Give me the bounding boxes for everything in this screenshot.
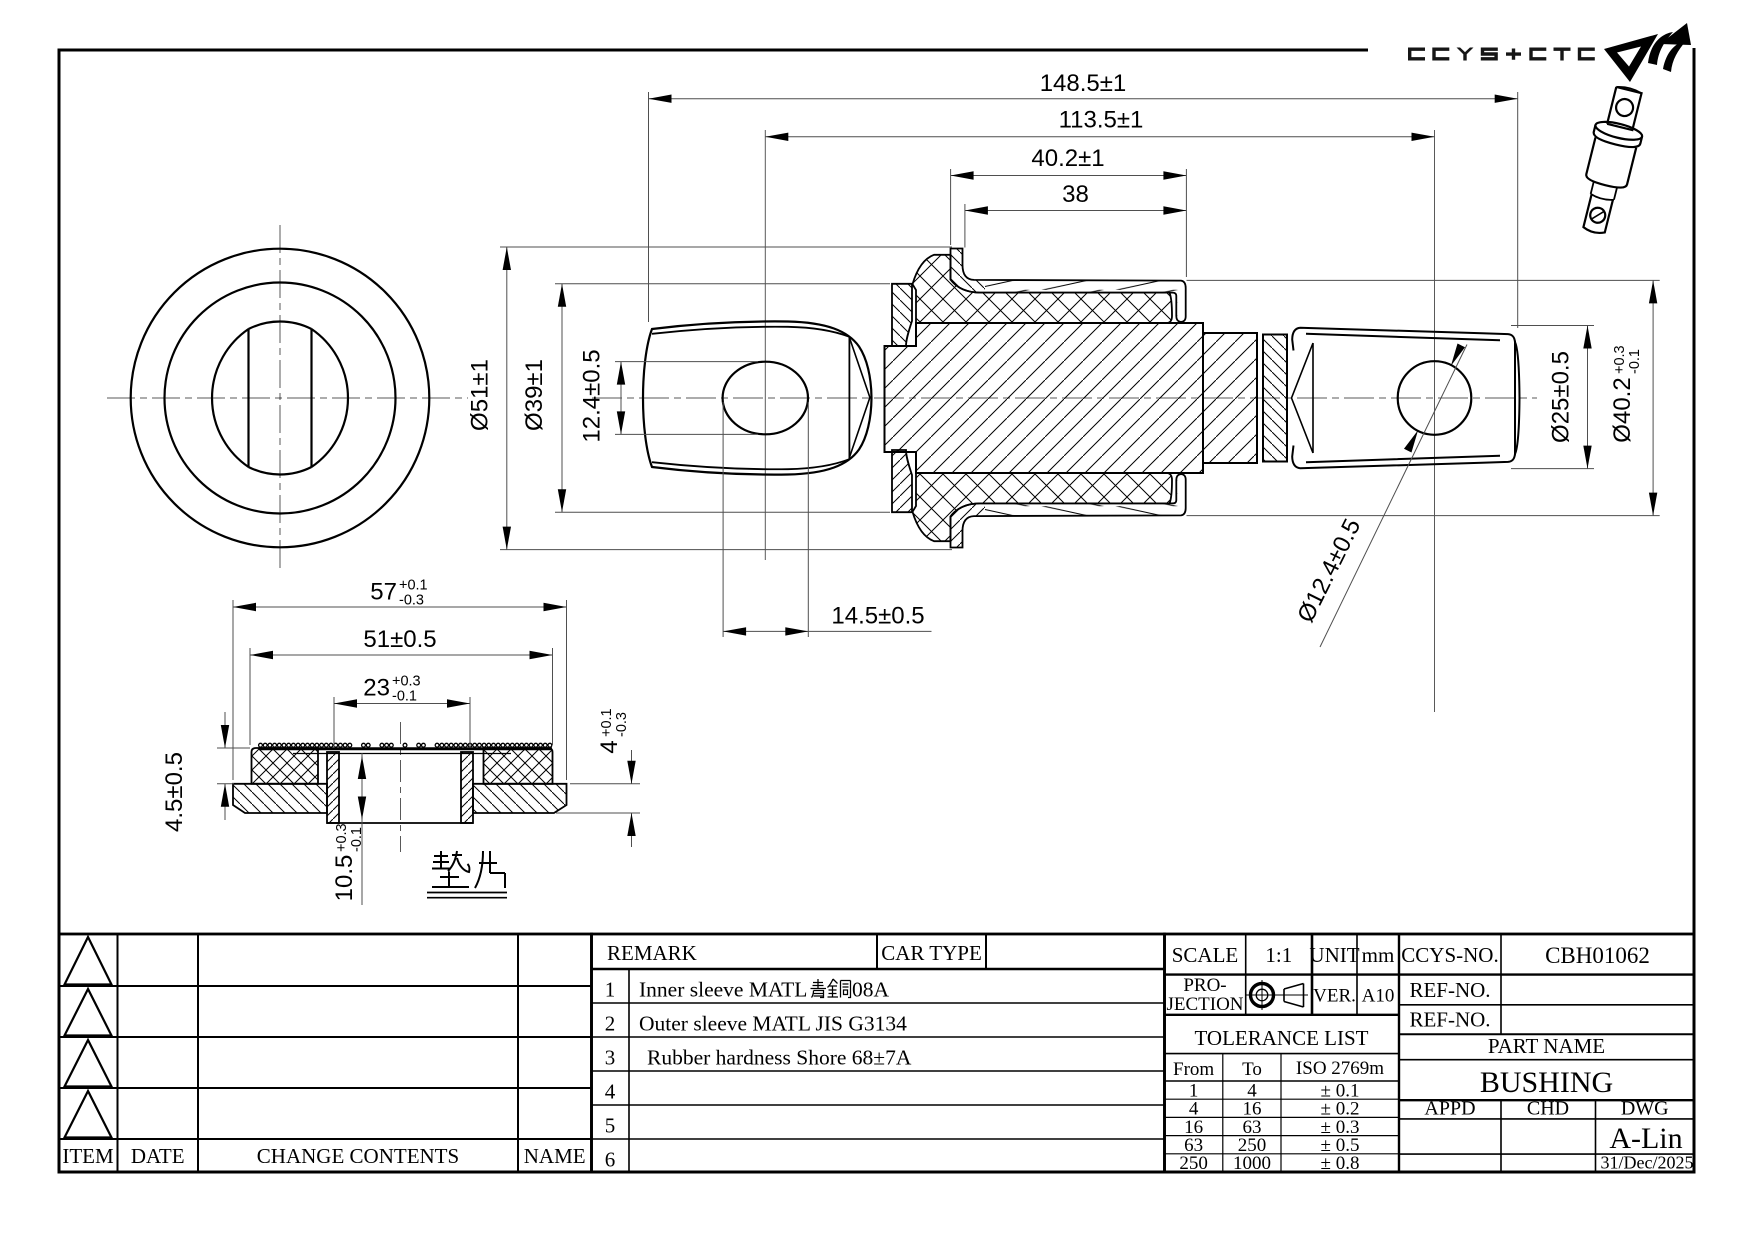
svg-text:4.5±0.5: 4.5±0.5 [161,752,188,832]
svg-text:31/Dec/2025: 31/Dec/2025 [1601,1153,1694,1173]
svg-text:40.2±1: 40.2±1 [1031,145,1104,172]
svg-text:CHD: CHD [1527,1098,1569,1120]
svg-text:Ø39±1: Ø39±1 [521,359,548,431]
svg-text:CBH01062: CBH01062 [1545,943,1650,968]
svg-text:VER.: VER. [1313,986,1356,1007]
svg-text:A10: A10 [1362,986,1395,1007]
svg-text:PART NAME: PART NAME [1488,1034,1605,1058]
svg-text:3: 3 [605,1046,616,1070]
svg-text:113.5±1: 113.5±1 [1059,107,1144,134]
svg-text:BUSHING: BUSHING [1480,1066,1613,1099]
svg-text:mm: mm [1362,943,1395,967]
svg-text:250: 250 [1179,1153,1208,1174]
svg-text:+0.3: +0.3 [392,674,421,690]
svg-text:Ø25±0.5: Ø25±0.5 [1548,351,1575,443]
svg-text:Rubber hardness Shore 68±7A: Rubber hardness Shore 68±7A [647,1046,912,1070]
svg-text:From: From [1173,1059,1214,1080]
svg-text:REMARK: REMARK [607,941,697,965]
svg-text:Ø40.2: Ø40.2 [1609,377,1636,442]
svg-text:-0.3: -0.3 [399,593,424,609]
svg-text:6: 6 [605,1148,616,1172]
svg-text:Ø51±1: Ø51±1 [467,359,494,431]
svg-text:DWG: DWG [1621,1098,1669,1120]
svg-text:+0.3: +0.3 [1612,345,1628,374]
svg-text:-0.1: -0.1 [392,689,417,705]
svg-text:ISO 2769m: ISO 2769m [1296,1058,1384,1079]
svg-text:+0.1: +0.1 [599,708,615,737]
svg-text:57: 57 [370,579,397,606]
svg-text:-0.1: -0.1 [349,827,365,852]
svg-text:REF-NO.: REF-NO. [1409,1008,1490,1032]
svg-text:51±0.5: 51±0.5 [363,626,436,653]
svg-text:SCALE: SCALE [1172,943,1239,967]
svg-text:08A: 08A [852,978,890,1002]
svg-text:A-Lin: A-Lin [1609,1122,1682,1155]
svg-text:CCYS-NO.: CCYS-NO. [1401,943,1498,967]
svg-text:CAR TYPE: CAR TYPE [881,941,982,965]
svg-text:Outer sleeve MATL JIS G3134: Outer sleeve MATL JIS G3134 [639,1012,907,1036]
svg-text:± 0.8: ± 0.8 [1321,1153,1360,1174]
svg-text:38: 38 [1062,181,1089,208]
svg-text:DATE: DATE [131,1144,185,1168]
svg-text:10.5: 10.5 [331,855,358,902]
svg-text:PRO-: PRO- [1183,975,1226,996]
svg-text:1: 1 [605,978,616,1002]
svg-text:+0.3: +0.3 [334,823,350,852]
svg-text:1000: 1000 [1233,1153,1271,1174]
svg-text:14.5±0.5: 14.5±0.5 [831,603,924,630]
svg-text:-0.3: -0.3 [614,712,630,737]
svg-text:NAME: NAME [524,1144,586,1168]
svg-text:-0.1: -0.1 [1627,349,1643,374]
svg-text:TOLERANCE LIST: TOLERANCE LIST [1194,1026,1368,1050]
svg-text:23: 23 [363,675,390,702]
svg-text:Inner sleeve MATL: Inner sleeve MATL [639,978,807,1002]
svg-text:12.4±0.5: 12.4±0.5 [578,349,605,442]
svg-text:148.5±1: 148.5±1 [1040,70,1127,97]
svg-text:1:1: 1:1 [1265,943,1292,967]
svg-text:JECTION: JECTION [1166,994,1243,1015]
svg-text:4: 4 [596,740,623,753]
svg-text:2: 2 [605,1012,616,1036]
svg-text:UNIT: UNIT [1309,943,1359,967]
svg-text:ITEM: ITEM [62,1144,114,1168]
svg-text:5: 5 [605,1114,616,1138]
svg-text:4: 4 [605,1080,616,1104]
svg-text:REF-NO.: REF-NO. [1409,978,1490,1002]
svg-text:To: To [1242,1059,1262,1080]
svg-text:CHANGE CONTENTS: CHANGE CONTENTS [257,1144,459,1168]
svg-text:APPD: APPD [1424,1098,1475,1120]
svg-text:+0.1: +0.1 [399,578,428,594]
